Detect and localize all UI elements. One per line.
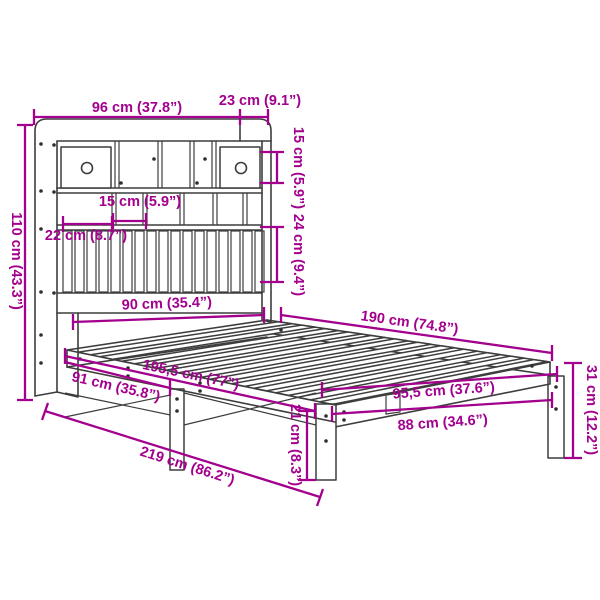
dim-label-top-shelf-height: 15 cm (5.9”) bbox=[290, 127, 306, 209]
dim-label-headboard-height: 110 cm (43.3”) bbox=[8, 212, 24, 310]
dim-label-headboard-top-depth: 23 cm (9.1”) bbox=[219, 93, 301, 109]
dim-label-compartment-width: 15 cm (5.9”) bbox=[99, 194, 181, 210]
dim-label-foot-end-height: 31 cm (12.2”) bbox=[583, 365, 599, 455]
dimension-diagram: 96 cm (37.8”) 23 cm (9.1”) 110 cm (43.3”… bbox=[0, 0, 600, 600]
dim-label-left-compartment-width: 22 cm (8.7”) bbox=[45, 228, 127, 244]
right-drawer bbox=[220, 147, 260, 188]
dim-label-foot-inner-width: 88 cm (34.6”) bbox=[397, 412, 488, 434]
dim-line-compartment-width bbox=[113, 213, 146, 229]
cross-braces bbox=[65, 393, 316, 425]
left-drawer bbox=[61, 147, 111, 188]
dim-label-headboard-width: 96 cm (37.8”) bbox=[92, 100, 182, 116]
dim-line-top-shelf-height bbox=[260, 152, 284, 183]
dim-label-lower-shelf-height: 24 cm (9.4”) bbox=[290, 214, 306, 296]
dim-label-bed-width: 90 cm (35.4”) bbox=[121, 294, 212, 313]
dim-label-foot-outer-width: 95,5 cm (37.6”) bbox=[392, 379, 495, 402]
dim-label-under-bed-clearance: 21 cm (8.3”) bbox=[287, 404, 303, 486]
dim-line-headboard-top-depth bbox=[240, 109, 268, 125]
dim-line-foot-end-height bbox=[564, 363, 582, 458]
bookcase-bed-diagram-canvas: 96 cm (37.8”) 23 cm (9.1”) 110 cm (43.3”… bbox=[0, 0, 600, 600]
